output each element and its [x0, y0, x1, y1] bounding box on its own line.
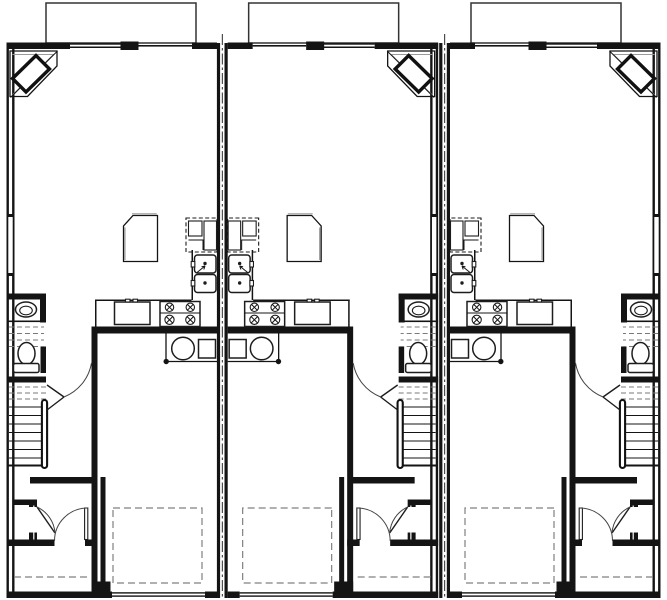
- party-wall-2: [439, 34, 450, 598]
- unit-3-plan: [450, 3, 661, 598]
- unit-1-plan: [7, 3, 218, 598]
- unit-2-plan: [228, 3, 439, 598]
- party-wall-1: [217, 34, 228, 598]
- floor-plan: [0, 0, 667, 600]
- floor-plan-svg: [0, 0, 667, 600]
